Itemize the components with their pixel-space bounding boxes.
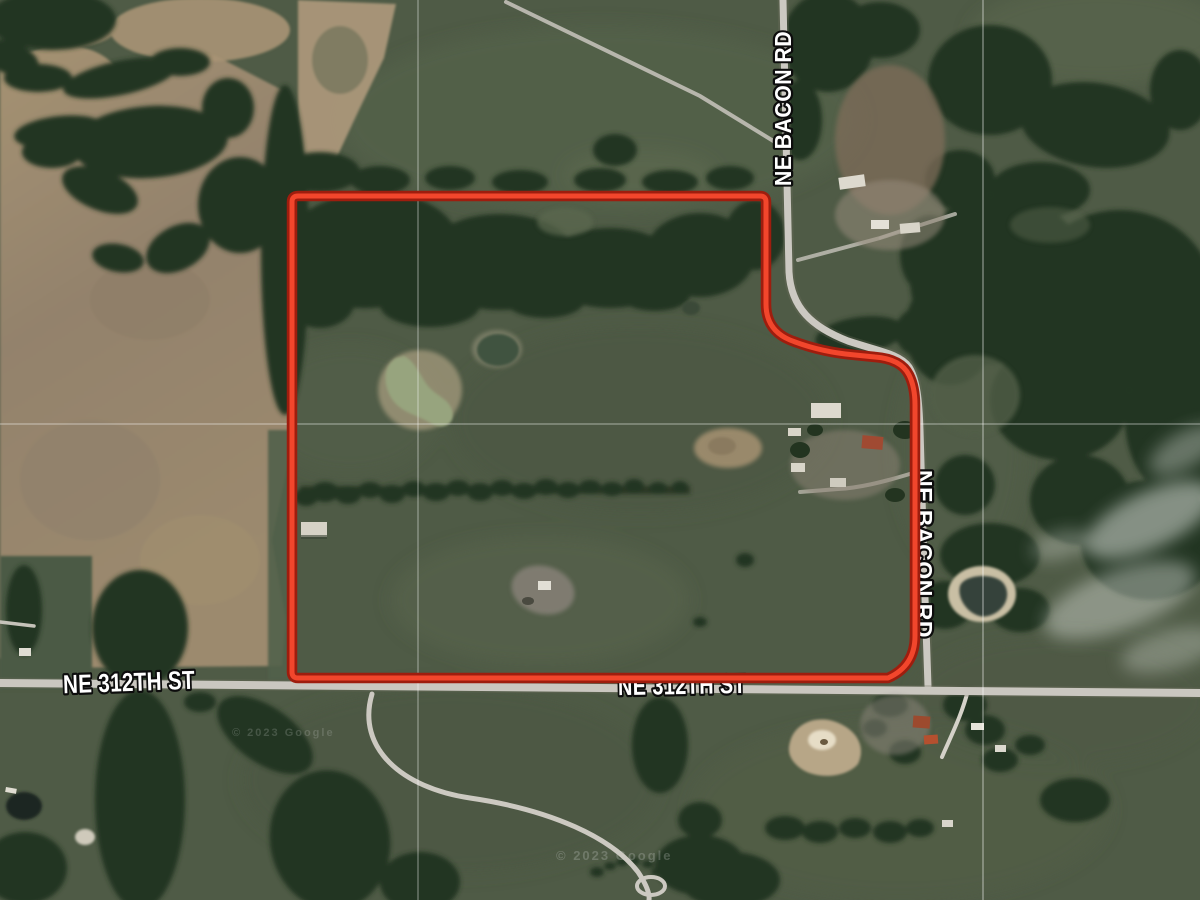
pond-small bbox=[477, 334, 519, 366]
road-label-bacon-top: NE BACON RD bbox=[770, 31, 796, 186]
watermark-text: © 2023 Google bbox=[232, 727, 335, 739]
road-label-312th-left: NE 312TH ST bbox=[62, 665, 195, 700]
map-canvas[interactable]: © 2023 Google © 2023 Google NE BACON RD … bbox=[0, 0, 1200, 900]
watermark-text: © 2023 Google bbox=[556, 848, 673, 863]
